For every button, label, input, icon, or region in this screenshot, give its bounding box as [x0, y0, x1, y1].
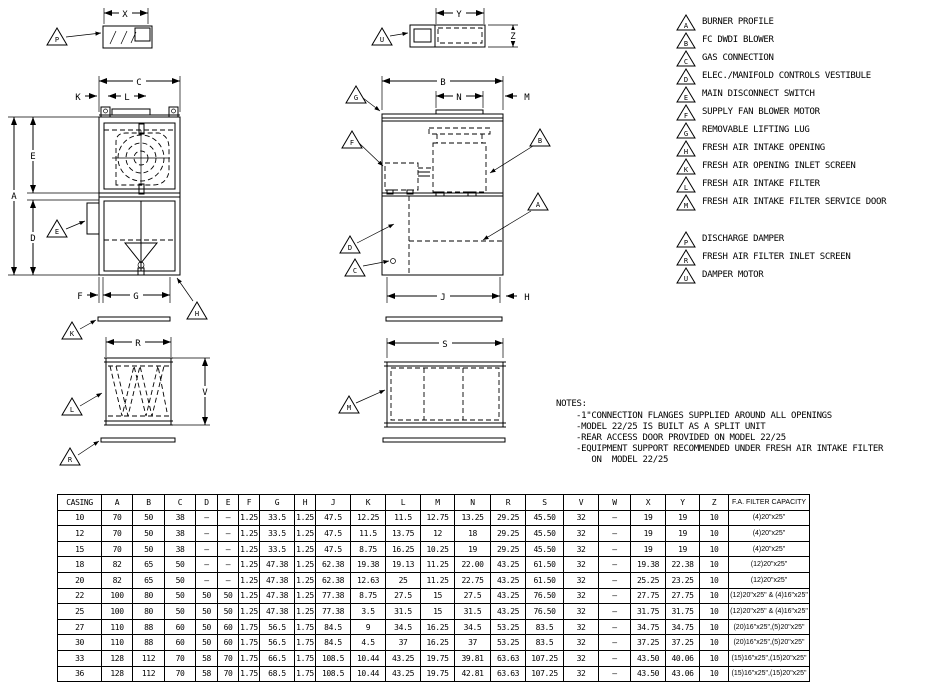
table-cell: 12 — [421, 526, 455, 542]
table-cell: 19.38 — [351, 557, 386, 573]
table-cell: 43.25 — [491, 572, 526, 588]
table-cell: 88 — [133, 635, 165, 651]
callout-p: P — [47, 28, 101, 45]
table-cell: – — [218, 526, 239, 542]
legend-item: HFRESH AIR INTAKE OPENING — [676, 139, 886, 157]
table-cell: 1.25 — [295, 604, 316, 620]
dim-label-f: F — [77, 292, 82, 302]
table-cell: 10 — [700, 619, 729, 635]
table-cell: 10 — [58, 510, 102, 526]
table-cell: 16.25 — [421, 635, 455, 651]
table-row: 30110886050601.7556.51.7584.54.53716.253… — [58, 635, 810, 651]
table-cell: – — [196, 510, 218, 526]
table-cell: 19 — [631, 541, 666, 557]
table-cell: – — [196, 541, 218, 557]
table-cell: 50 — [133, 510, 165, 526]
table-cell: 62.38 — [316, 557, 351, 573]
table-cell: 19.75 — [421, 650, 455, 666]
table-cell: 1.75 — [295, 650, 316, 666]
column-header: F.A. FILTER CAPACITY — [729, 495, 810, 511]
table-cell: 50 — [196, 635, 218, 651]
table-cell: 33 — [58, 650, 102, 666]
table-cell: 60 — [218, 619, 239, 635]
table-cell: 32 — [564, 604, 599, 620]
table-cell: 1.25 — [239, 526, 260, 542]
svg-text:E: E — [55, 228, 59, 236]
dim-label-a: A — [11, 192, 17, 202]
table-cell: 19 — [666, 526, 700, 542]
svg-text:F: F — [350, 139, 354, 147]
column-header: X — [631, 495, 666, 511]
table-cell: 50 — [165, 588, 196, 604]
legend-item-label: DISCHARGE DAMPER — [702, 234, 784, 244]
table-cell: 43.25 — [386, 666, 421, 682]
table-cell: 38 — [165, 510, 196, 526]
table-cell: 61.50 — [526, 557, 564, 573]
legend-item: LFRESH AIR INTAKE FILTER — [676, 175, 886, 193]
table-cell: 22.38 — [666, 557, 700, 573]
table-cell: 50 — [196, 619, 218, 635]
table-cell: 88 — [133, 619, 165, 635]
table-cell: – — [599, 572, 631, 588]
dim-label-j: J — [440, 293, 445, 303]
dim-label-g: G — [133, 292, 138, 302]
table-cell: 18 — [58, 557, 102, 573]
column-header: A — [102, 495, 133, 511]
table-cell: 43.06 — [666, 666, 700, 682]
table-cell: 47.38 — [260, 572, 295, 588]
table-cell: 62.38 — [316, 572, 351, 588]
svg-text:G: G — [354, 94, 358, 102]
table-cell: 108.5 — [316, 666, 351, 682]
table-cell: – — [218, 572, 239, 588]
dim-label-y: Y — [456, 10, 462, 20]
table-cell: – — [599, 650, 631, 666]
table-cell: 82 — [102, 572, 133, 588]
table-cell: 34.5 — [455, 619, 491, 635]
table-cell: 40.06 — [666, 650, 700, 666]
column-header: D — [196, 495, 218, 511]
table-cell: – — [218, 557, 239, 573]
table-cell: 12 — [58, 526, 102, 542]
table-cell: 42.81 — [455, 666, 491, 682]
svg-text:P: P — [55, 36, 59, 44]
legend-callout-letter: B — [684, 40, 688, 48]
callout-triangle-icon: E — [676, 86, 696, 103]
table-cell: 128 — [102, 650, 133, 666]
legend-item-label: DAMPER MOTOR — [702, 270, 763, 280]
column-header: R — [491, 495, 526, 511]
table-cell: 19 — [455, 541, 491, 557]
callout-triangle-icon: H — [676, 140, 696, 157]
table-cell: 13.25 — [455, 510, 491, 526]
notes-line: ON MODEL 22/25 — [576, 455, 883, 466]
table-cell: (4)20"x25" — [729, 526, 810, 542]
table-cell: 63.63 — [491, 650, 526, 666]
table-cell: – — [196, 572, 218, 588]
table-cell: 60 — [165, 619, 196, 635]
table-cell: 47.38 — [260, 588, 295, 604]
table-cell: 76.50 — [526, 604, 564, 620]
table-cell: 11.25 — [421, 557, 455, 573]
svg-text:M: M — [347, 404, 351, 412]
table-cell: 37.25 — [666, 635, 700, 651]
table-cell: 20 — [58, 572, 102, 588]
column-header: Z — [700, 495, 729, 511]
callout-r: R — [60, 441, 99, 465]
legend-item: ABURNER PROFILE — [676, 13, 886, 31]
legend-item-label: BURNER PROFILE — [702, 17, 774, 27]
table-cell: 47.38 — [260, 557, 295, 573]
table-cell: 19 — [631, 510, 666, 526]
table-cell: 50 — [133, 541, 165, 557]
table-cell: 77.38 — [316, 588, 351, 604]
front-view: X P C K L — [8, 8, 211, 465]
table-cell: 82 — [102, 557, 133, 573]
table-row: 22100805050501.2547.381.2577.388.7527.51… — [58, 588, 810, 604]
table-cell: 27 — [58, 619, 102, 635]
table-cell: 84.5 — [316, 635, 351, 651]
table-cell: – — [196, 526, 218, 542]
table-row: 331281127058701.7566.51.75108.510.4443.2… — [58, 650, 810, 666]
table-cell: 1.25 — [295, 541, 316, 557]
table-cell: 1.25 — [295, 526, 316, 542]
column-header: CASING — [58, 495, 102, 511]
table-cell: (12)20"x25" & (4)16"x25" — [729, 588, 810, 604]
legend-item: CGAS CONNECTION — [676, 49, 886, 67]
side-view: Y Z U B N M G — [339, 8, 550, 442]
table-cell: 12.75 — [421, 510, 455, 526]
table-cell: 70 — [102, 541, 133, 557]
table-cell: – — [599, 526, 631, 542]
table-cell: 83.5 — [526, 635, 564, 651]
dim-label-b: B — [440, 78, 445, 88]
table-cell: 29.25 — [491, 526, 526, 542]
table-cell: 1.25 — [239, 557, 260, 573]
table-row: 25100805050501.2547.381.2577.383.531.515… — [58, 604, 810, 620]
casing-table-wrap: CASINGABCDEFGHJKLMNRSVWXYZF.A. FILTER CA… — [57, 494, 810, 682]
table-cell: 43.25 — [491, 604, 526, 620]
table-cell: (12)20"x25" — [729, 572, 810, 588]
legend-callout-letter: F — [684, 112, 688, 120]
callout-h: H — [177, 278, 207, 319]
callout-u: U — [372, 28, 408, 45]
column-header: G — [260, 495, 295, 511]
legend-callout-letter: U — [684, 275, 688, 283]
callout-triangle-icon: K — [676, 158, 696, 175]
table-cell: 84.5 — [316, 619, 351, 635]
legend-callout-letter: H — [684, 148, 688, 156]
table-row: 27110886050601.7556.51.7584.5934.516.253… — [58, 619, 810, 635]
column-header: L — [386, 495, 421, 511]
table-cell: 128 — [102, 666, 133, 682]
callout-triangle-icon: P — [676, 231, 696, 248]
callout-triangle-icon: B — [676, 32, 696, 49]
table-cell: 65 — [133, 557, 165, 573]
legend-item-label: FRESH AIR INTAKE FILTER — [702, 179, 820, 189]
table-cell: 1.75 — [295, 635, 316, 651]
table-cell: 37 — [386, 635, 421, 651]
table-cell: 1.25 — [239, 604, 260, 620]
table-cell: 25 — [386, 572, 421, 588]
table-cell: 32 — [564, 572, 599, 588]
table-cell: 23.25 — [666, 572, 700, 588]
table-cell: 58 — [196, 650, 218, 666]
table-cell: 110 — [102, 619, 133, 635]
table-cell: 10 — [700, 572, 729, 588]
legend-item: PDISCHARGE DAMPER — [676, 230, 886, 248]
svg-text:L: L — [70, 406, 74, 414]
table-cell: 16.25 — [386, 541, 421, 557]
callout-e: E — [47, 220, 85, 237]
table-cell: 70 — [102, 510, 133, 526]
table-cell: 10.25 — [421, 541, 455, 557]
legend-item: EMAIN DISCONNECT SWITCH — [676, 85, 886, 103]
legend-item-label: FRESH AIR OPENING INLET SCREEN — [702, 161, 856, 171]
table-cell: 19.75 — [421, 666, 455, 682]
unit-drawings: X P C K L — [0, 0, 560, 478]
legend-group: PDISCHARGE DAMPERRFRESH AIR FILTER INLET… — [676, 230, 886, 284]
casing-table: CASINGABCDEFGHJKLMNRSVWXYZF.A. FILTER CA… — [57, 494, 810, 682]
column-header: E — [218, 495, 239, 511]
table-cell: 8.75 — [351, 541, 386, 557]
callout-triangle-icon: A — [676, 14, 696, 31]
dim-label-n: N — [456, 93, 461, 103]
table-cell: 38 — [165, 526, 196, 542]
table-cell: 32 — [564, 588, 599, 604]
legend-group: ABURNER PROFILEBFC DWDI BLOWERCGAS CONNE… — [676, 13, 886, 211]
callout-triangle-icon: G — [676, 122, 696, 139]
table-cell: 8.75 — [351, 588, 386, 604]
table-cell: 66.5 — [260, 650, 295, 666]
table-cell: 80 — [133, 604, 165, 620]
legend: ABURNER PROFILEBFC DWDI BLOWERCGAS CONNE… — [676, 13, 886, 303]
callout-f: F — [342, 131, 383, 166]
callout-d: D — [340, 224, 394, 253]
table-cell: 11.25 — [421, 572, 455, 588]
legend-item: UDAMPER MOTOR — [676, 266, 886, 284]
table-cell: 56.5 — [260, 635, 295, 651]
table-cell: 32 — [564, 510, 599, 526]
table-cell: 50 — [196, 604, 218, 620]
table-cell: 1.75 — [295, 619, 316, 635]
table-cell: 15 — [421, 604, 455, 620]
dim-label-h2: H — [524, 293, 529, 303]
table-cell: – — [599, 635, 631, 651]
legend-item: FSUPPLY FAN BLOWER MOTOR — [676, 103, 886, 121]
table-cell: 70 — [218, 650, 239, 666]
table-cell: 10 — [700, 510, 729, 526]
table-cell: 37 — [455, 635, 491, 651]
legend-callout-letter: E — [684, 94, 688, 102]
table-cell: 31.75 — [666, 604, 700, 620]
legend-callout-letter: L — [684, 184, 688, 192]
table-cell: 31.75 — [631, 604, 666, 620]
legend-item: KFRESH AIR OPENING INLET SCREEN — [676, 157, 886, 175]
table-cell: 83.5 — [526, 619, 564, 635]
table-cell: – — [599, 557, 631, 573]
column-header: J — [316, 495, 351, 511]
table-cell: 19.38 — [631, 557, 666, 573]
table-cell: 33.5 — [260, 526, 295, 542]
table-cell: 27.75 — [631, 588, 666, 604]
table-cell: 15 — [421, 588, 455, 604]
table-cell: 110 — [102, 635, 133, 651]
table-cell: 56.5 — [260, 619, 295, 635]
table-cell: 77.38 — [316, 604, 351, 620]
table-cell: 50 — [218, 604, 239, 620]
table-cell: 10 — [700, 666, 729, 682]
table-body: 10705038––1.2533.51.2547.512.2511.512.75… — [58, 510, 810, 682]
table-cell: 10 — [700, 557, 729, 573]
callout-triangle-icon: F — [676, 104, 696, 121]
column-header: V — [564, 495, 599, 511]
table-cell: – — [599, 666, 631, 682]
dim-label-s: S — [442, 340, 447, 350]
table-cell: 27.5 — [386, 588, 421, 604]
table-cell: 32 — [564, 650, 599, 666]
table-cell: 32 — [564, 557, 599, 573]
notes-line: -REAR ACCESS DOOR PROVIDED ON MODEL 22/2… — [576, 433, 883, 444]
table-cell: 10 — [700, 650, 729, 666]
callout-triangle-icon: M — [676, 194, 696, 211]
table-cell: 1.25 — [295, 572, 316, 588]
table-cell: (15)16"x25",(15)20"x25" — [729, 650, 810, 666]
table-cell: (20)16"x25",(5)20"x25" — [729, 619, 810, 635]
table-cell: 27.75 — [666, 588, 700, 604]
column-header: W — [599, 495, 631, 511]
table-cell: 34.75 — [666, 619, 700, 635]
table-cell: 47.38 — [260, 604, 295, 620]
table-cell: 22.00 — [455, 557, 491, 573]
svg-text:C: C — [353, 267, 357, 275]
legend-item-label: REMOVABLE LIFTING LUG — [702, 125, 810, 135]
table-cell: 38 — [165, 541, 196, 557]
table-cell: 10 — [700, 604, 729, 620]
table-cell: 16.25 — [421, 619, 455, 635]
table-cell: 47.5 — [316, 510, 351, 526]
table-cell: 19 — [666, 510, 700, 526]
table-cell: – — [599, 619, 631, 635]
table-cell: 1.75 — [239, 635, 260, 651]
column-header: N — [455, 495, 491, 511]
column-header: S — [526, 495, 564, 511]
column-header: F — [239, 495, 260, 511]
table-cell: 100 — [102, 588, 133, 604]
callout-l: L — [62, 393, 102, 415]
table-cell: 100 — [102, 604, 133, 620]
table-cell: 10 — [700, 541, 729, 557]
table-row: 12705038––1.2533.51.2547.511.513.7512182… — [58, 526, 810, 542]
table-cell: 13.75 — [386, 526, 421, 542]
table-cell: 1.25 — [239, 541, 260, 557]
table-cell: 1.25 — [295, 557, 316, 573]
callout-k: K — [62, 320, 96, 339]
table-cell: 31.5 — [455, 604, 491, 620]
column-header: H — [295, 495, 316, 511]
legend-item-label: FRESH AIR INTAKE FILTER SERVICE DOOR — [702, 197, 886, 207]
dim-label-c: C — [136, 78, 141, 88]
legend-item: DELEC./MANIFOLD CONTROLS VESTIBULE — [676, 67, 886, 85]
legend-item: BFC DWDI BLOWER — [676, 31, 886, 49]
notes-lines: -1"CONNECTION FLANGES SUPPLIED AROUND AL… — [556, 411, 883, 466]
table-cell: 9 — [351, 619, 386, 635]
table-cell: (12)20"x25" & (4)16"x25" — [729, 604, 810, 620]
svg-text:B: B — [538, 137, 542, 145]
dim-label-e: E — [30, 152, 35, 162]
table-row: 361281127058701.7568.51.75108.510.4443.2… — [58, 666, 810, 682]
table-cell: – — [218, 510, 239, 526]
table-cell: 25.25 — [631, 572, 666, 588]
svg-text:D: D — [348, 244, 352, 252]
table-cell: 53.25 — [491, 619, 526, 635]
table-cell: 60 — [218, 635, 239, 651]
table-cell: 68.5 — [260, 666, 295, 682]
legend-callout-letter: M — [684, 202, 688, 210]
table-cell: 70 — [165, 650, 196, 666]
dim-label-r: R — [135, 339, 141, 349]
table-cell: 19 — [631, 526, 666, 542]
table-cell: 32 — [564, 619, 599, 635]
table-cell: 47.5 — [316, 541, 351, 557]
table-cell: 11.5 — [351, 526, 386, 542]
table-cell: 112 — [133, 650, 165, 666]
dim-label-v: V — [202, 388, 208, 398]
table-cell: (20)16"x25",(5)20"x25" — [729, 635, 810, 651]
table-cell: 70 — [218, 666, 239, 682]
svg-text:U: U — [380, 36, 384, 44]
table-cell: 10 — [700, 635, 729, 651]
table-cell: (4)20"x25" — [729, 541, 810, 557]
dim-label-d: D — [30, 234, 35, 244]
table-cell: 39.81 — [455, 650, 491, 666]
table-cell: – — [218, 541, 239, 557]
table-cell: 10 — [700, 526, 729, 542]
callout-m: M — [339, 390, 385, 413]
legend-callout-letter: D — [684, 76, 688, 84]
table-cell: 45.50 — [526, 526, 564, 542]
callout-b: B — [490, 129, 550, 173]
table-cell: 1.25 — [295, 510, 316, 526]
table-cell: 32 — [564, 541, 599, 557]
table-cell: 58 — [196, 666, 218, 682]
table-cell: 10.44 — [351, 650, 386, 666]
table-header-row: CASINGABCDEFGHJKLMNRSVWXYZF.A. FILTER CA… — [58, 495, 810, 511]
table-cell: 10.44 — [351, 666, 386, 682]
table-cell: 47.5 — [316, 526, 351, 542]
table-cell: 45.50 — [526, 541, 564, 557]
dim-label-m: M — [524, 93, 530, 103]
table-cell: 50 — [165, 572, 196, 588]
table-cell: 1.75 — [295, 666, 316, 682]
table-row: 18826550––1.2547.381.2562.3819.3819.1311… — [58, 557, 810, 573]
legend-item: MFRESH AIR INTAKE FILTER SERVICE DOOR — [676, 193, 886, 211]
table-cell: 30 — [58, 635, 102, 651]
callout-triangle-icon: L — [676, 176, 696, 193]
table-cell: 70 — [102, 526, 133, 542]
table-cell: 50 — [165, 557, 196, 573]
table-cell: 1.75 — [239, 619, 260, 635]
dim-label-x: X — [122, 10, 128, 20]
table-cell: 1.25 — [239, 510, 260, 526]
table-cell: 11.5 — [386, 510, 421, 526]
notes-line: -MODEL 22/25 IS BUILT AS A SPLIT UNIT — [576, 422, 883, 433]
table-cell: 34.75 — [631, 619, 666, 635]
callout-g: G — [346, 86, 380, 111]
table-row: 10705038––1.2533.51.2547.512.2511.512.75… — [58, 510, 810, 526]
table-cell: 50 — [133, 526, 165, 542]
callout-a: A — [483, 193, 548, 240]
